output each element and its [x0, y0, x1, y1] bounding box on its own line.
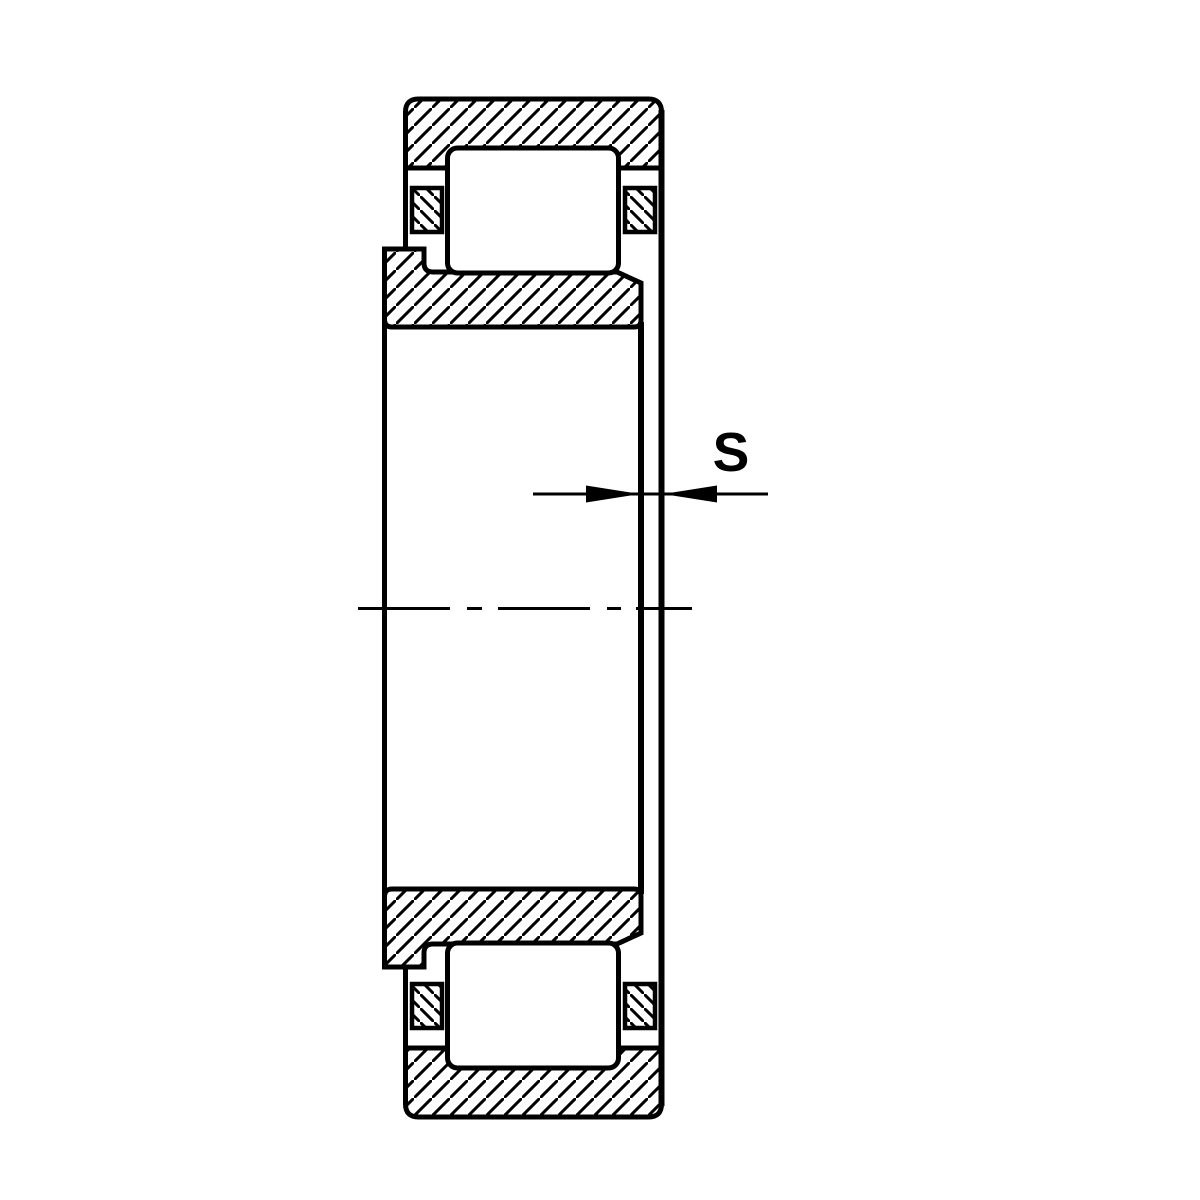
- roller-bottom: [448, 943, 619, 1068]
- dimension-arrow-right: [663, 486, 717, 503]
- roller-top: [448, 148, 619, 273]
- cage-bar-top-right: [625, 188, 655, 232]
- dimension-label-s: S: [713, 421, 750, 483]
- cage-bar-bottom-right: [625, 984, 655, 1028]
- axial-clearance-dimension: S: [533, 421, 768, 503]
- cage-bar-bottom-left: [412, 984, 442, 1028]
- drawing-canvas: S: [0, 0, 1200, 1200]
- bearing-cross-section-drawing: S: [0, 0, 1200, 1200]
- cage-bar-top-left: [412, 188, 442, 232]
- dimension-arrow-left: [586, 486, 640, 503]
